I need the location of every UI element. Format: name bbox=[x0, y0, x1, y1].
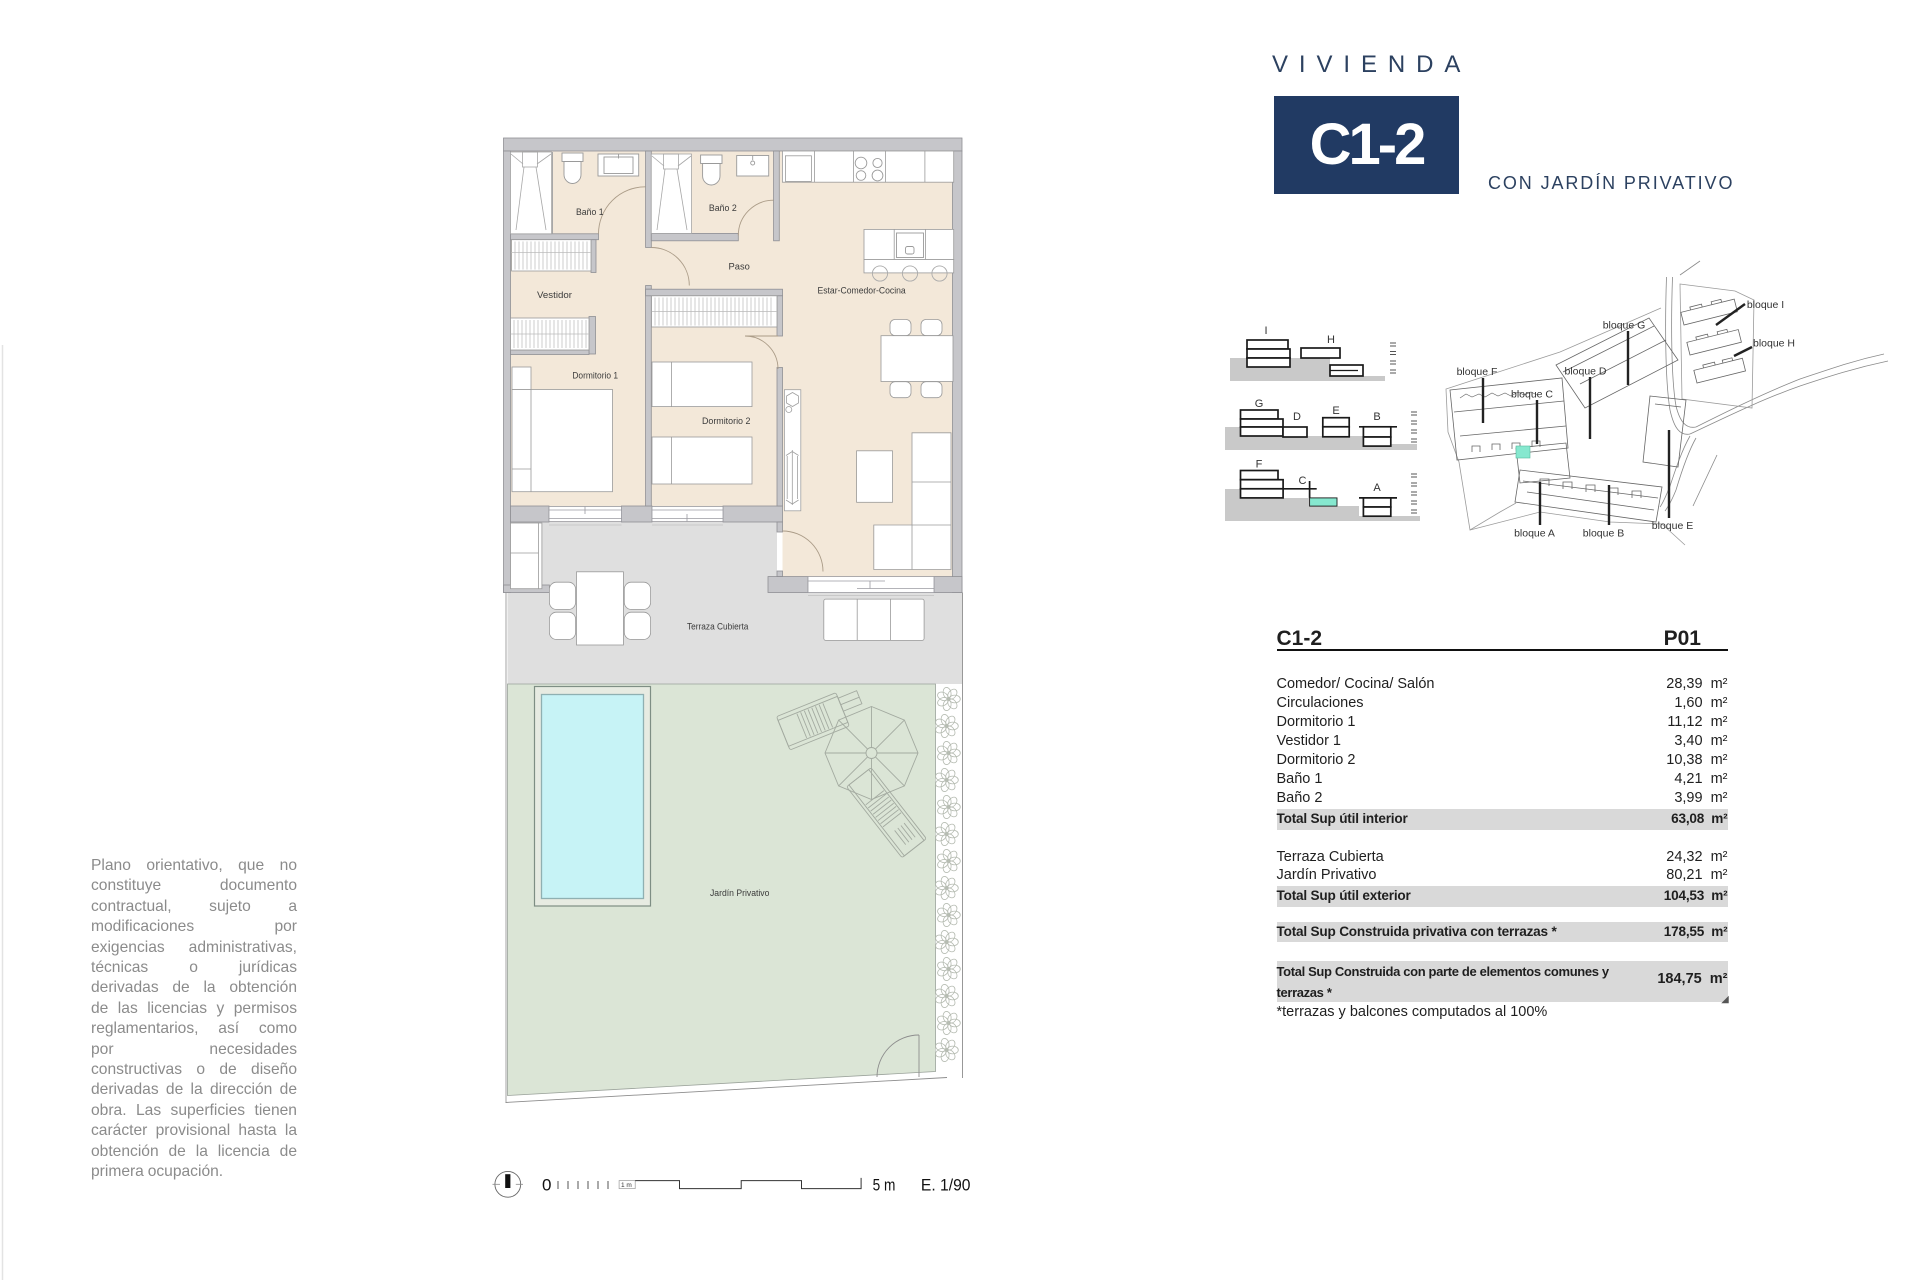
svg-text:A: A bbox=[1373, 482, 1381, 494]
svg-text:I: I bbox=[1264, 325, 1267, 337]
svg-text:5 m: 5 m bbox=[873, 1176, 896, 1195]
svg-text:bloque E: bloque E bbox=[1652, 520, 1693, 532]
svg-text:E. 1/90: E. 1/90 bbox=[921, 1176, 971, 1195]
svg-text:B: B bbox=[1373, 411, 1380, 423]
svg-text:D: D bbox=[1293, 411, 1301, 423]
svg-text:Paso: Paso bbox=[729, 261, 750, 272]
svg-text:Estar-Comedor-Cocina: Estar-Comedor-Cocina bbox=[817, 286, 906, 297]
svg-text:Jardín Privativo: Jardín Privativo bbox=[710, 888, 769, 899]
svg-text:Dormitorio 1: Dormitorio 1 bbox=[572, 371, 618, 382]
svg-text:E: E bbox=[1332, 405, 1339, 417]
svg-text:bloque D: bloque D bbox=[1564, 366, 1606, 378]
svg-text:bloque F: bloque F bbox=[1457, 366, 1498, 378]
svg-text:0: 0 bbox=[542, 1176, 551, 1195]
svg-text:bloque C: bloque C bbox=[1511, 389, 1553, 401]
svg-text:Dormitorio 2: Dormitorio 2 bbox=[702, 416, 751, 427]
svg-text:Terraza Cubierta: Terraza Cubierta bbox=[687, 621, 749, 632]
svg-text:H: H bbox=[1327, 334, 1335, 346]
svg-text:bloque H: bloque H bbox=[1753, 337, 1795, 349]
svg-text:bloque G: bloque G bbox=[1603, 320, 1646, 332]
svg-text:bloque B: bloque B bbox=[1583, 528, 1624, 540]
svg-text:Baño 2: Baño 2 bbox=[709, 203, 737, 214]
svg-text:Baño 1: Baño 1 bbox=[576, 207, 604, 218]
svg-text:F: F bbox=[1256, 459, 1263, 471]
svg-text:1 m: 1 m bbox=[621, 1182, 632, 1189]
svg-text:C: C bbox=[1299, 475, 1307, 487]
svg-text:Vestidor: Vestidor bbox=[537, 290, 573, 301]
svg-text:bloque I: bloque I bbox=[1747, 299, 1784, 311]
svg-text:bloque A: bloque A bbox=[1514, 528, 1555, 540]
svg-text:G: G bbox=[1255, 398, 1264, 410]
